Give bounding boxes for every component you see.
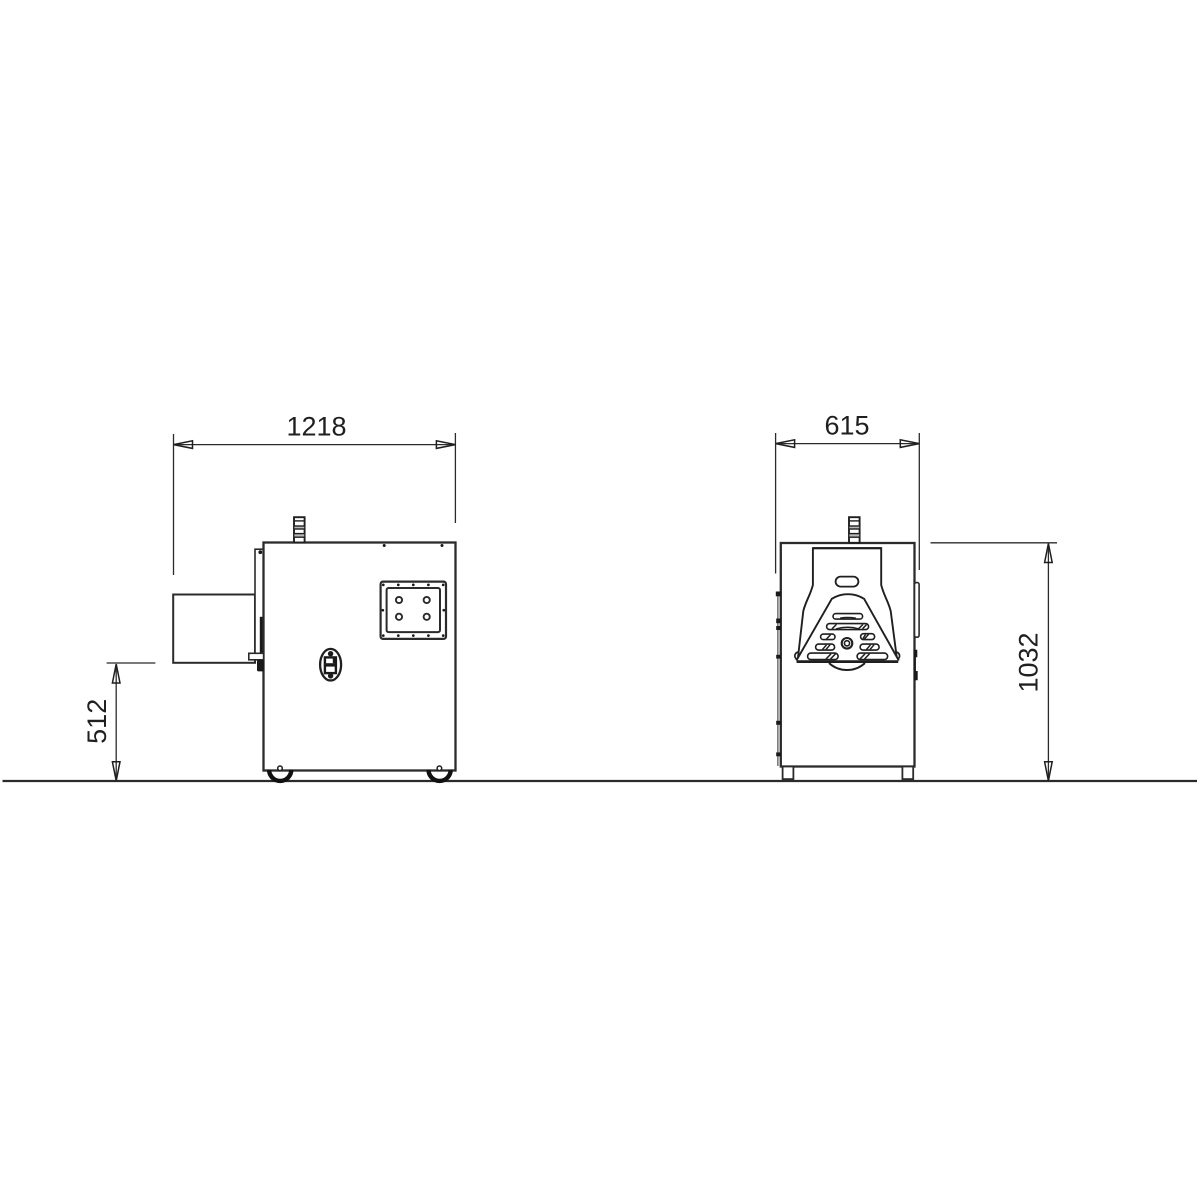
svg-text:1032: 1032 xyxy=(1013,632,1043,692)
svg-text:512: 512 xyxy=(82,699,112,744)
svg-text:1218: 1218 xyxy=(286,412,346,442)
svg-text:615: 615 xyxy=(824,411,869,441)
